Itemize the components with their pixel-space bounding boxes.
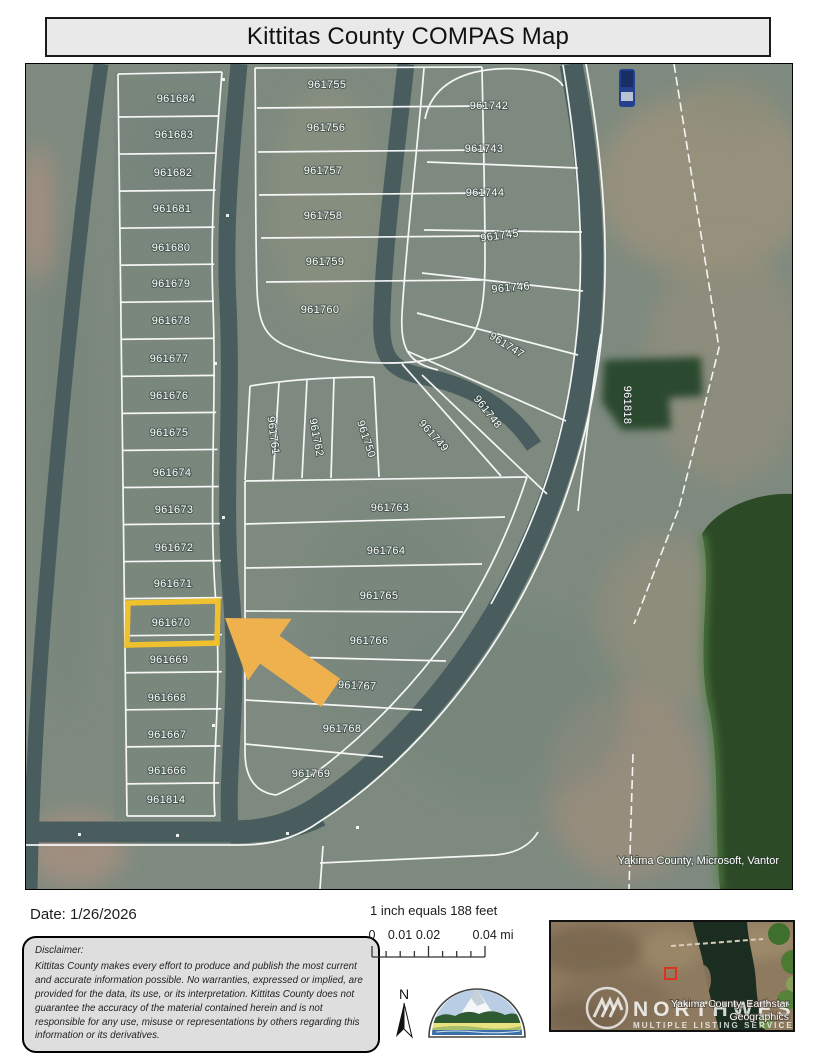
- parcel-label-961672: 961672: [155, 542, 194, 554]
- parcel-label-961674: 961674: [153, 467, 192, 479]
- parcel-label-961670: 961670: [152, 617, 191, 629]
- parcel-label-961766: 961766: [350, 635, 389, 647]
- parcel-label-961671: 961671: [154, 578, 193, 590]
- main-map: 9616849616839616829616819616809616799616…: [25, 63, 793, 890]
- parcel-label-961683: 961683: [155, 129, 194, 141]
- parcel-label-961743: 961743: [465, 143, 504, 155]
- parcel-label-961759: 961759: [306, 256, 345, 268]
- parcel-label-961758: 961758: [304, 210, 343, 222]
- parcel-label-961757: 961757: [304, 165, 343, 177]
- north-label: N: [399, 986, 409, 1002]
- scale-bar: 0 0.01 0.02 0.04 mi: [364, 926, 524, 966]
- parcel-label-961679: 961679: [152, 278, 191, 290]
- page-title-text: Kittitas County COMPAS Map: [247, 23, 569, 51]
- disclaimer-title: Disclaimer:: [35, 944, 367, 958]
- parcel-label-961667: 961667: [148, 729, 187, 741]
- disclaimer-box: Disclaimer: Kittitas County makes every …: [22, 936, 380, 1053]
- inset-attribution-1: Yakima County, Earthstar: [671, 998, 790, 1010]
- logo-scene: [432, 989, 522, 1036]
- map-canvas: 9616849616839616829616819616809616799616…: [26, 64, 792, 889]
- parcel-label-961765: 961765: [360, 590, 399, 602]
- inset-attribution-2: Geographics: [729, 1011, 789, 1023]
- parcel-label-961763: 961763: [371, 502, 410, 514]
- parcel-label-961681: 961681: [153, 203, 192, 215]
- inset-map: NORTHWEST MULTIPLE LISTING SERVICE. Yaki…: [549, 920, 795, 1032]
- truck: [619, 69, 635, 107]
- inset-peninsula: [695, 965, 711, 995]
- parcel-label-961764: 961764: [367, 545, 406, 557]
- parcel-label-961755: 961755: [308, 79, 347, 91]
- scale-ruler: [372, 946, 485, 957]
- parcel-label-961756: 961756: [307, 122, 346, 134]
- parcel-label-961744: 961744: [466, 187, 505, 199]
- parcel-label-961676: 961676: [150, 390, 189, 402]
- scale-tick-2: 0.02: [416, 928, 440, 942]
- parcel-label-961742: 961742: [470, 100, 509, 112]
- parcel-label-961684: 961684: [157, 93, 196, 105]
- north-needle-right: [404, 1003, 412, 1037]
- parcel-label-961678: 961678: [152, 315, 191, 327]
- parcel-label-961666: 961666: [148, 765, 187, 777]
- parcel-label-961682: 961682: [154, 167, 193, 179]
- parcel-label-961768: 961768: [323, 723, 362, 735]
- scale-tick-1: 0.01: [388, 928, 412, 942]
- parcel-label-961673: 961673: [155, 504, 194, 516]
- parcel-label-961818: 961818: [621, 386, 633, 425]
- page-title: Kittitas County COMPAS Map: [45, 17, 771, 57]
- north-needle-left: [396, 1003, 404, 1037]
- north-arrow: N: [389, 986, 419, 1042]
- parcel-label-961760: 961760: [301, 304, 340, 316]
- inset-canvas: NORTHWEST MULTIPLE LISTING SERVICE. Yaki…: [551, 922, 793, 1030]
- scale-tick-3: 0.04 mi: [473, 928, 514, 942]
- parcel-label-961677: 961677: [150, 353, 189, 365]
- county-logo: [426, 983, 528, 1041]
- map-attribution: Yakima County, Microsoft, Vantor: [618, 855, 780, 867]
- parcel-label-961814: 961814: [147, 794, 186, 806]
- parcel-label-961675: 961675: [150, 427, 189, 439]
- disclaimer-body: Kittitas County makes every effort to pr…: [35, 960, 367, 1043]
- parcel-label-961680: 961680: [152, 242, 191, 254]
- parcel-label-961668: 961668: [148, 692, 187, 704]
- parcel-label-961769: 961769: [292, 768, 331, 780]
- parcel-label-961669: 961669: [150, 654, 189, 666]
- scale-tick-0: 0: [369, 928, 376, 942]
- scale-text: 1 inch equals 188 feet: [370, 903, 497, 918]
- parcel-label-961767: 961767: [338, 679, 377, 693]
- date-label: Date: 1/26/2026: [30, 906, 137, 923]
